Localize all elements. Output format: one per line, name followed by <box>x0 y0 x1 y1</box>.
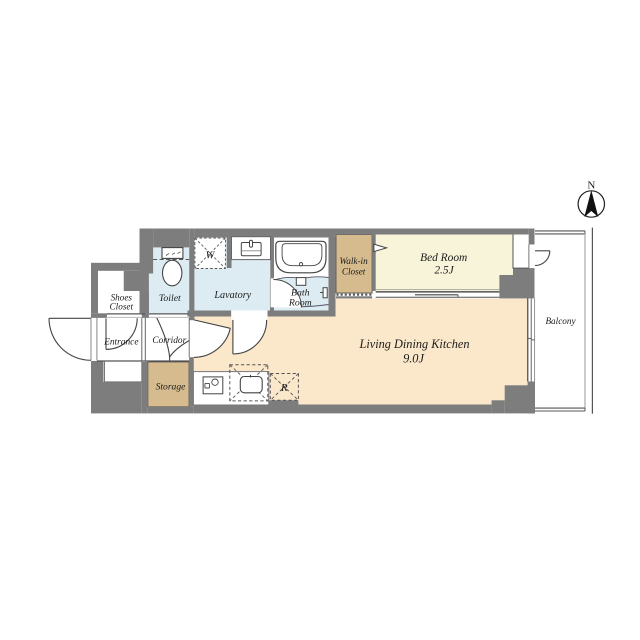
svg-text:N: N <box>587 180 595 192</box>
svg-text:R: R <box>280 382 288 394</box>
svg-text:Bed Room: Bed Room <box>420 252 467 264</box>
svg-text:Closet: Closet <box>342 266 366 276</box>
svg-text:Closet: Closet <box>110 302 134 312</box>
svg-text:Walk-in: Walk-in <box>339 256 368 266</box>
svg-text:Corridor: Corridor <box>152 336 186 346</box>
svg-text:Living Dining Kitchen: Living Dining Kitchen <box>359 337 470 351</box>
svg-text:Toilet: Toilet <box>159 293 181 304</box>
svg-text:Entrance: Entrance <box>103 338 138 348</box>
svg-text:Lavatory: Lavatory <box>213 290 251 301</box>
svg-text:9.0J: 9.0J <box>403 352 424 366</box>
svg-text:Balcony: Balcony <box>545 316 576 326</box>
svg-text:Room: Room <box>288 297 312 308</box>
svg-text:W: W <box>206 251 216 262</box>
svg-text:2.5J: 2.5J <box>434 265 454 277</box>
svg-text:Storage: Storage <box>156 382 187 393</box>
